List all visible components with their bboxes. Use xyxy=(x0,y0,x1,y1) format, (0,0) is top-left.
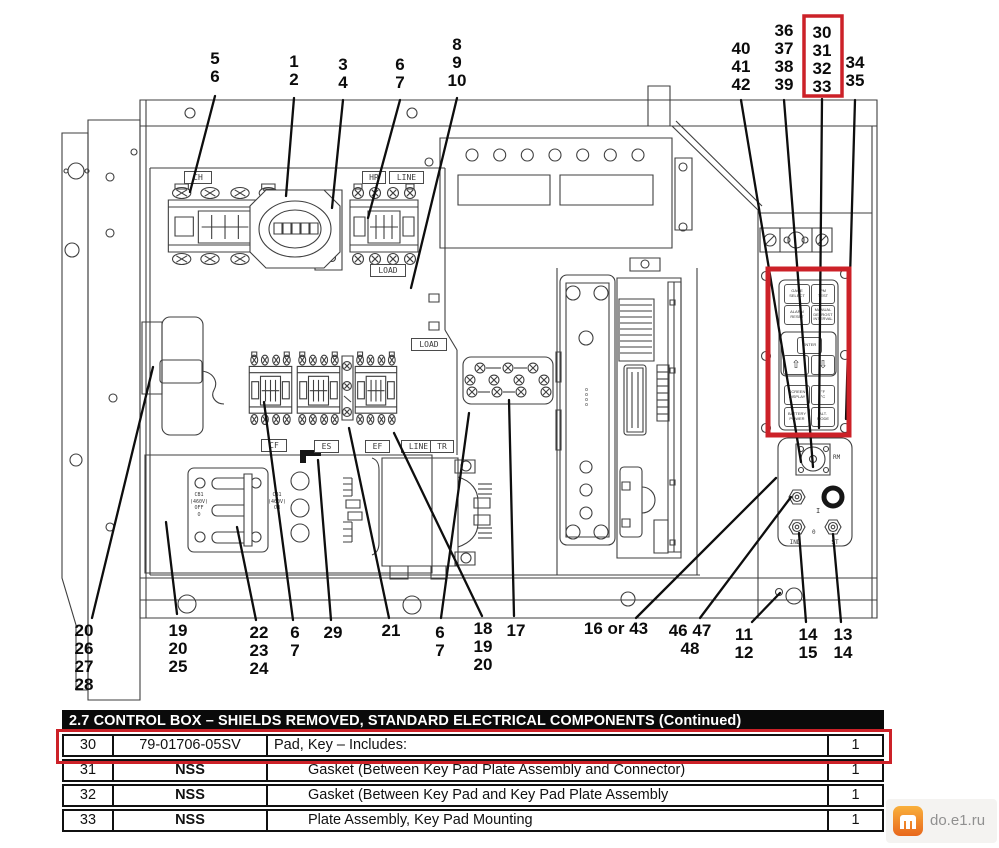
callout-6-7-bottom-right: 6 7 xyxy=(435,624,444,660)
hr-contactor xyxy=(350,184,418,265)
keypad-button-manual-defrost: MANUAL DEFROST INTERVAL xyxy=(811,305,835,325)
keypad-button-up-arrow: ⇧ xyxy=(783,355,809,375)
keypad-button-enter: ENTER xyxy=(797,337,822,354)
callout-34-35: 34 35 xyxy=(846,54,865,90)
keypad-button-degrees: °F °C xyxy=(811,385,835,405)
callout-16-or-43: 16 or 43 xyxy=(584,620,648,638)
callout-17: 17 xyxy=(507,622,526,640)
callout-6-7-top: 6 7 xyxy=(395,56,404,92)
callout-3-4: 3 4 xyxy=(338,56,347,92)
highlight-box-table-row-30 xyxy=(56,729,892,764)
callout-8-9-10: 8 9 10 xyxy=(448,36,467,90)
control-board-assembly xyxy=(556,258,697,575)
label-ind-connector: IND xyxy=(784,539,806,546)
keypad-button-gage-select: GAGE SELECT xyxy=(784,284,810,304)
label-tr: TR xyxy=(430,440,454,453)
callout-21: 21 xyxy=(382,622,401,640)
choke-coil xyxy=(343,458,379,555)
e1-logo-icon xyxy=(893,806,923,836)
label-hr: HR xyxy=(362,171,386,184)
description: Gasket (Between Key Pad and Key Pad Plat… xyxy=(268,786,827,805)
label-cb1-right: CB1 (460V) ON xyxy=(262,492,292,512)
keypad-button-pm-test: PM TEST xyxy=(811,284,835,304)
watermark: do.e1.ru xyxy=(886,799,997,843)
control-box-parts-diagram-page: 5 6 1 2 3 4 6 7 8 9 10 40 41 42 36 37 38… xyxy=(0,0,999,848)
timer-module xyxy=(250,190,342,270)
callout-36-37-38-39: 36 37 38 39 xyxy=(775,22,794,94)
callout-29: 29 xyxy=(324,624,343,642)
switch-on-mark: I xyxy=(816,507,820,515)
part-number: NSS xyxy=(114,786,268,805)
item-number: 32 xyxy=(64,786,114,805)
callout-11-12: 11 12 xyxy=(735,626,754,662)
callout-30-31-32-33: 30 31 32 33 xyxy=(813,24,832,96)
callout-20-26-27-28: 20 26 27 28 xyxy=(75,622,94,694)
label-ef: EF xyxy=(365,440,390,453)
switch-off-mark: 0 xyxy=(812,529,816,536)
keypad-button-battery-power: BATTERY POWER xyxy=(784,407,810,427)
description: Plate Assembly, Key Pad Mounting xyxy=(268,811,827,830)
callout-46-47-48: 46 47 48 xyxy=(669,622,712,658)
wire-clamp-box xyxy=(142,317,224,435)
quantity: 1 xyxy=(827,811,882,830)
transformer xyxy=(382,458,492,579)
label-cb1-left: CB1 (460V) OFF O xyxy=(184,492,214,518)
diagram-linework xyxy=(0,0,999,706)
label-line-top: LINE xyxy=(389,171,424,184)
callout-1-2: 1 2 xyxy=(289,53,298,89)
callout-6-7-bottom-left: 6 7 xyxy=(290,624,299,660)
keypad-button-alt-mode: ALT. MODE xyxy=(811,407,835,427)
callout-14-15: 14 15 xyxy=(799,626,818,662)
callout-22-23-24: 22 23 24 xyxy=(250,624,269,678)
callout-40-41-42: 40 41 42 xyxy=(732,40,751,94)
label-st-connector: ST xyxy=(827,539,843,546)
item-number: 33 xyxy=(64,811,114,830)
label-es: ES xyxy=(314,440,339,453)
callout-18-19-20: 18 19 20 xyxy=(474,620,493,674)
callout-13-14: 13 14 xyxy=(834,626,853,662)
label-rm-connector: RM xyxy=(833,454,840,461)
keypad-button-alarm-reset: ALARM RESET xyxy=(784,305,810,325)
board-marks: oooo xyxy=(583,388,589,408)
callout-5-6: 5 6 xyxy=(210,50,219,86)
part-number: NSS xyxy=(114,811,268,830)
table-row-33: 33 NSS Plate Assembly, Key Pad Mounting … xyxy=(62,809,884,832)
top-vent-panel xyxy=(425,138,692,248)
keypad-button-screen-display: SCREEN DISPLAY xyxy=(784,385,810,405)
label-cf: CF xyxy=(261,439,287,452)
label-load-top: LOAD xyxy=(370,264,406,277)
label-load-mid: LOAD xyxy=(411,338,447,351)
left-mounting-brackets xyxy=(62,120,140,700)
terminal-block xyxy=(463,357,553,404)
keypad-button-down-arrow: ⇩ xyxy=(811,355,835,375)
callout-19-20-25: 19 20 25 xyxy=(169,622,188,676)
table-row-32: 32 NSS Gasket (Between Key Pad and Key P… xyxy=(62,784,884,807)
label-ch: CH xyxy=(184,171,212,184)
cf-es-ef-contactors xyxy=(249,352,396,424)
watermark-text: do.e1.ru xyxy=(930,812,985,829)
quantity: 1 xyxy=(827,786,882,805)
